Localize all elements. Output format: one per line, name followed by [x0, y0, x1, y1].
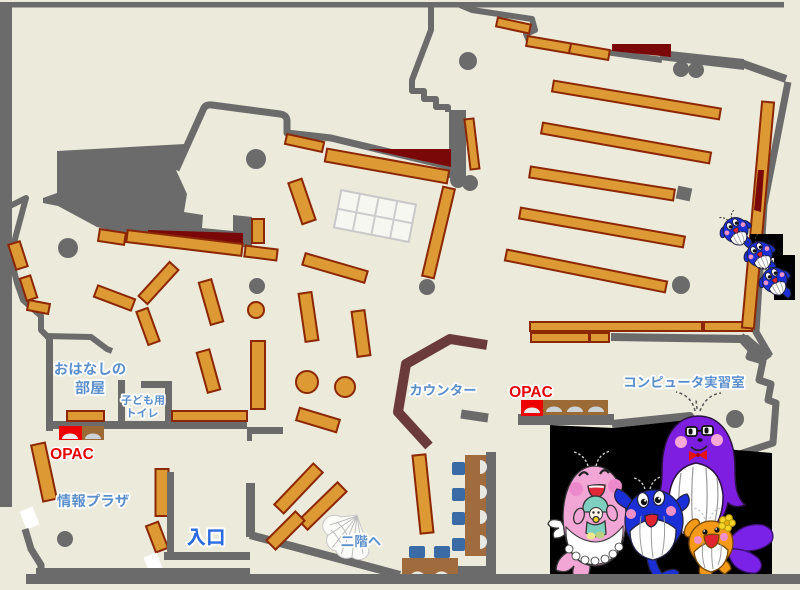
svg-text:OPAC: OPAC [50, 446, 94, 463]
svg-text:OPAC: OPAC [509, 384, 553, 401]
